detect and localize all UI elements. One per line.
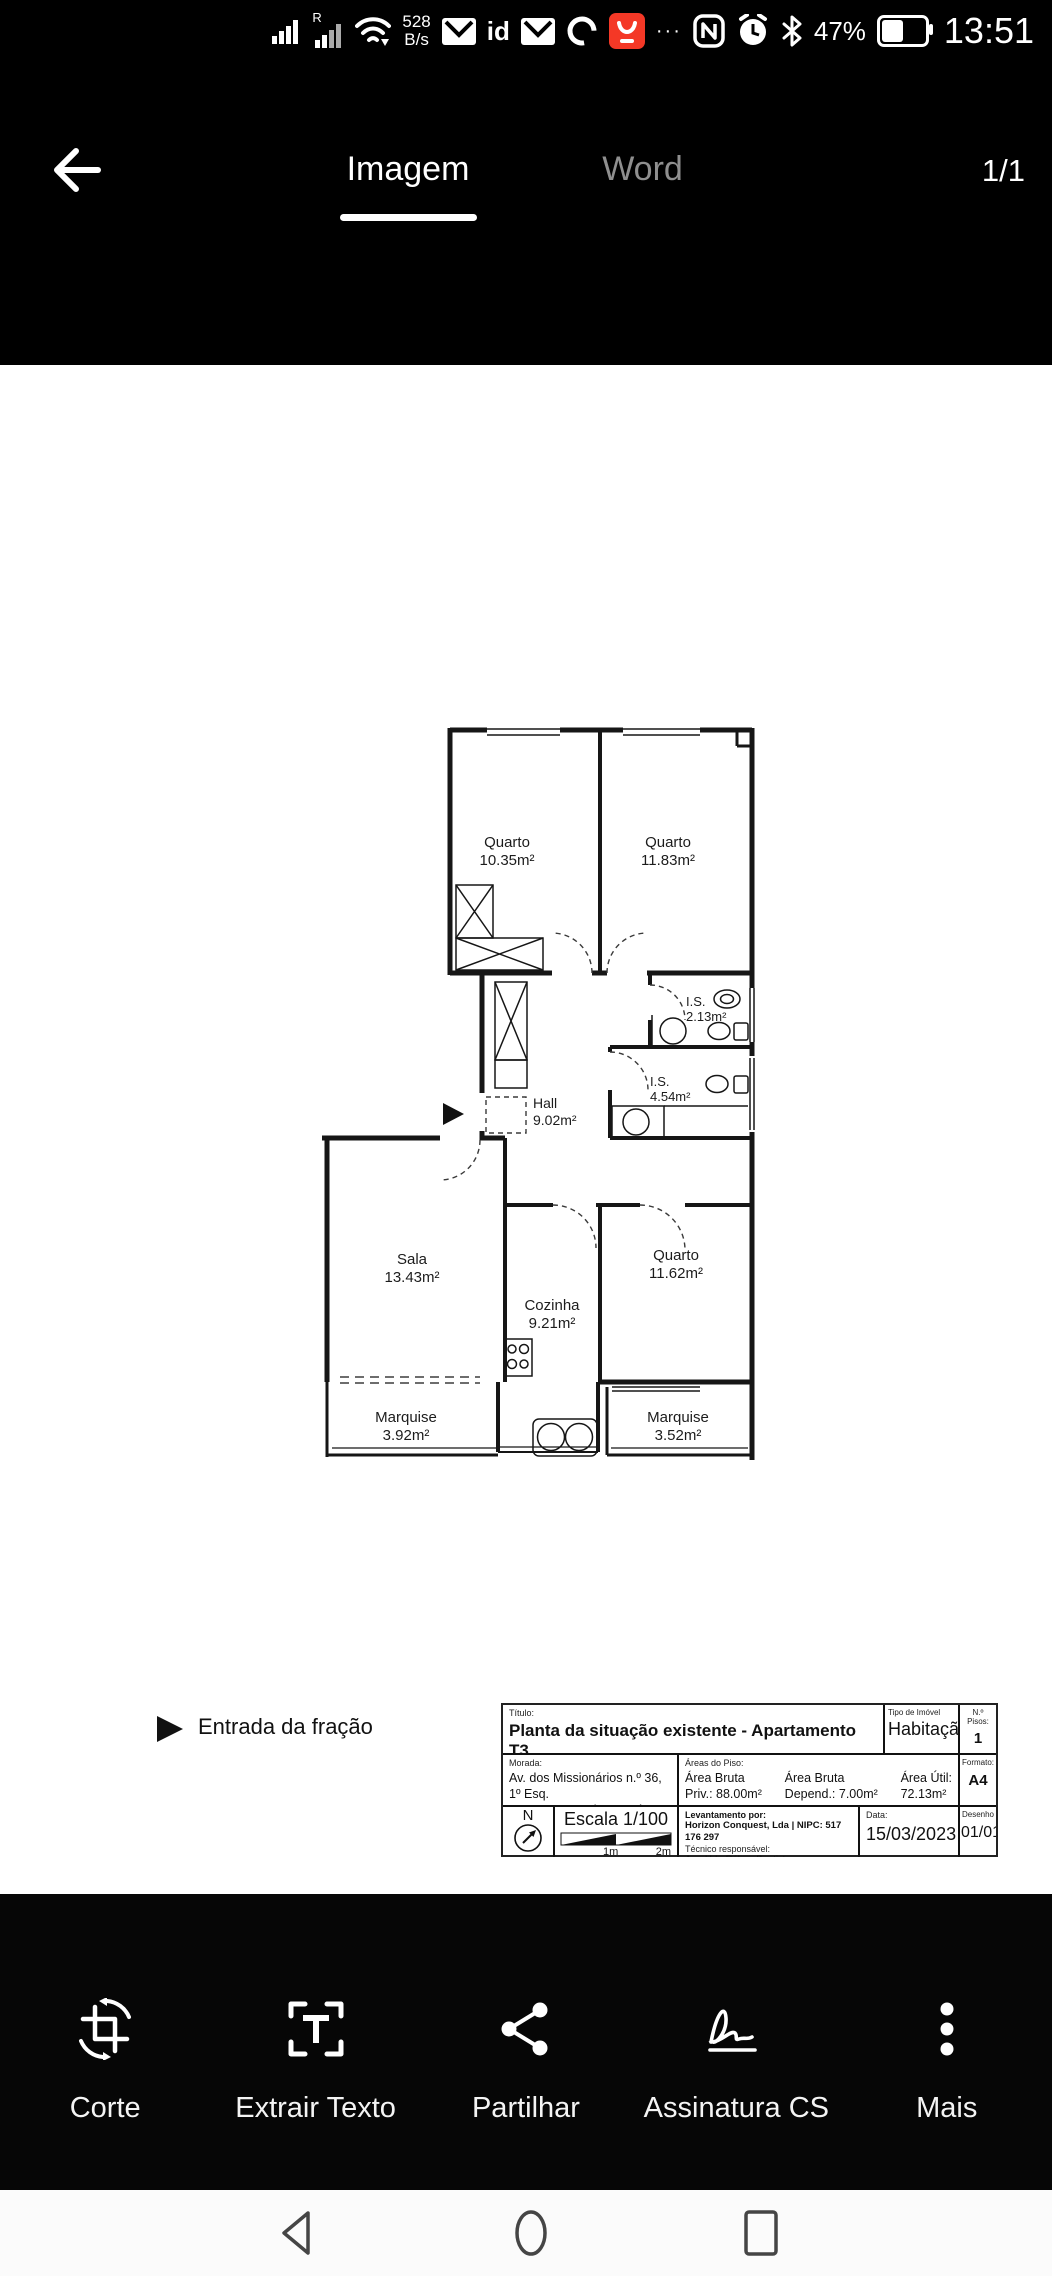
titleblock-north-cell: N — [503, 1807, 555, 1857]
id-app-notification-icon: id — [487, 16, 510, 47]
entrance-legend-arrow-icon — [157, 1716, 183, 1742]
titleblock-tipo-cell: Tipo de Imóvel Habitação — [885, 1705, 960, 1755]
more-vertical-icon — [916, 1998, 978, 2060]
crop-button[interactable]: Corte — [5, 1998, 205, 2125]
more-button[interactable]: Mais — [847, 1998, 1047, 2125]
page-indicator: 1/1 — [955, 153, 1025, 189]
nav-back-button[interactable] — [275, 2208, 325, 2258]
network-speed: 528 B/s — [402, 13, 430, 49]
room-label-is-2: I.S.4.54m² — [650, 1074, 710, 1104]
room-label-quarto-2: Quarto11.83m² — [608, 834, 728, 870]
clock-time: 13:51 — [944, 10, 1034, 52]
bluetooth-icon — [781, 15, 803, 47]
extract-text-icon — [285, 1998, 347, 2060]
north-letter: N — [504, 1808, 552, 1823]
room-label-quarto-1: Quarto10.35m² — [447, 834, 567, 870]
crop-icon — [74, 1998, 136, 2060]
status-bar: R 528 B/s id — [0, 0, 1052, 62]
title-block: Título: Planta da situação existente - A… — [501, 1703, 998, 1857]
titleblock-desenho-cell: Desenho 01/01 — [960, 1807, 996, 1857]
room-label-sala: Sala13.43m² — [352, 1251, 472, 1287]
entrance-arrow-icon — [443, 1103, 464, 1125]
titleblock-formato-cell: Formato: A4 — [960, 1755, 996, 1807]
titleblock-pisos-cell: N.º Pisos: 1 — [960, 1705, 996, 1755]
tab-imagem[interactable]: Imagem — [330, 150, 486, 189]
signal-strength-2-icon: R — [312, 14, 344, 48]
share-button[interactable]: Partilhar — [426, 1998, 626, 2125]
nav-home-button[interactable] — [506, 2208, 556, 2258]
alarm-clock-icon — [736, 14, 770, 48]
titleblock-levantamento-cell: Levantamento por: Horizon Conquest, Lda … — [679, 1807, 860, 1857]
room-label-quarto-3: Quarto11.62m² — [616, 1247, 736, 1283]
drawing-date: 15/03/2023 — [866, 1824, 952, 1845]
room-label-cozinha: Cozinha9.21m² — [492, 1297, 612, 1333]
scale-bar — [560, 1832, 672, 1846]
mail-notification-icon — [442, 18, 476, 45]
signature-icon — [703, 1998, 769, 2060]
nav-recents-button[interactable] — [736, 2208, 786, 2258]
document-image-viewport[interactable]: Quarto10.35m² Quarto11.83m² I.S.2.13m² I… — [0, 365, 1052, 1894]
titleblock-morada-cell: Morada: Av. dos Missionários n.º 36, 1º … — [503, 1755, 679, 1807]
room-label-is-1: I.S.2.13m² — [686, 994, 746, 1024]
battery-icon — [877, 15, 929, 47]
notification-overflow-icon: ··· — [656, 20, 682, 43]
signature-button[interactable]: Assinatura CS — [636, 1998, 836, 2125]
network-speed-unit: B/s — [402, 31, 430, 49]
wifi-icon — [355, 15, 391, 47]
extract-text-button[interactable]: Extrair Texto — [216, 1998, 416, 2125]
viewer-header: Imagem Word 1/1 — [0, 140, 1052, 240]
room-label-marquise-2: Marquise3.52m² — [618, 1409, 738, 1445]
share-icon — [495, 1998, 557, 2060]
network-speed-value: 528 — [402, 13, 430, 31]
aliexpress-notification-icon — [609, 13, 645, 49]
room-label-hall: Hall9.02m² — [533, 1095, 603, 1129]
mail-notification-icon — [521, 18, 555, 45]
sync-spinner-icon — [566, 15, 598, 47]
entrance-legend-label: Entrada da fração — [198, 1714, 373, 1740]
north-compass-icon — [513, 1823, 543, 1853]
signal-strength-icon — [271, 16, 301, 46]
phone-screen: R 528 B/s id — [0, 0, 1052, 2276]
back-button[interactable] — [46, 144, 104, 196]
scale-text: Escala 1/100 — [559, 1809, 673, 1830]
battery-percent: 47% — [814, 16, 866, 47]
titleblock-escala-cell: Escala 1/100 1m2m — [555, 1807, 679, 1857]
titleblock-data-cell: Data: 15/03/2023 — [860, 1807, 960, 1857]
titleblock-titulo-cell: Título: Planta da situação existente - A… — [503, 1705, 885, 1755]
android-navigation-bar — [0, 2190, 1052, 2276]
active-tab-underline — [340, 214, 477, 221]
drawing-title: Planta da situação existente - Apartamen… — [509, 1721, 877, 1755]
tab-word[interactable]: Word — [580, 150, 705, 189]
action-toolbar: Corte Extrair Texto Partilhar — [0, 1894, 1052, 2190]
room-label-marquise-1: Marquise3.92m² — [346, 1409, 466, 1445]
nfc-icon — [693, 14, 725, 48]
titleblock-areas-cell: Áreas do Piso: Área BrutaPriv.: 88.00m² … — [679, 1755, 960, 1807]
